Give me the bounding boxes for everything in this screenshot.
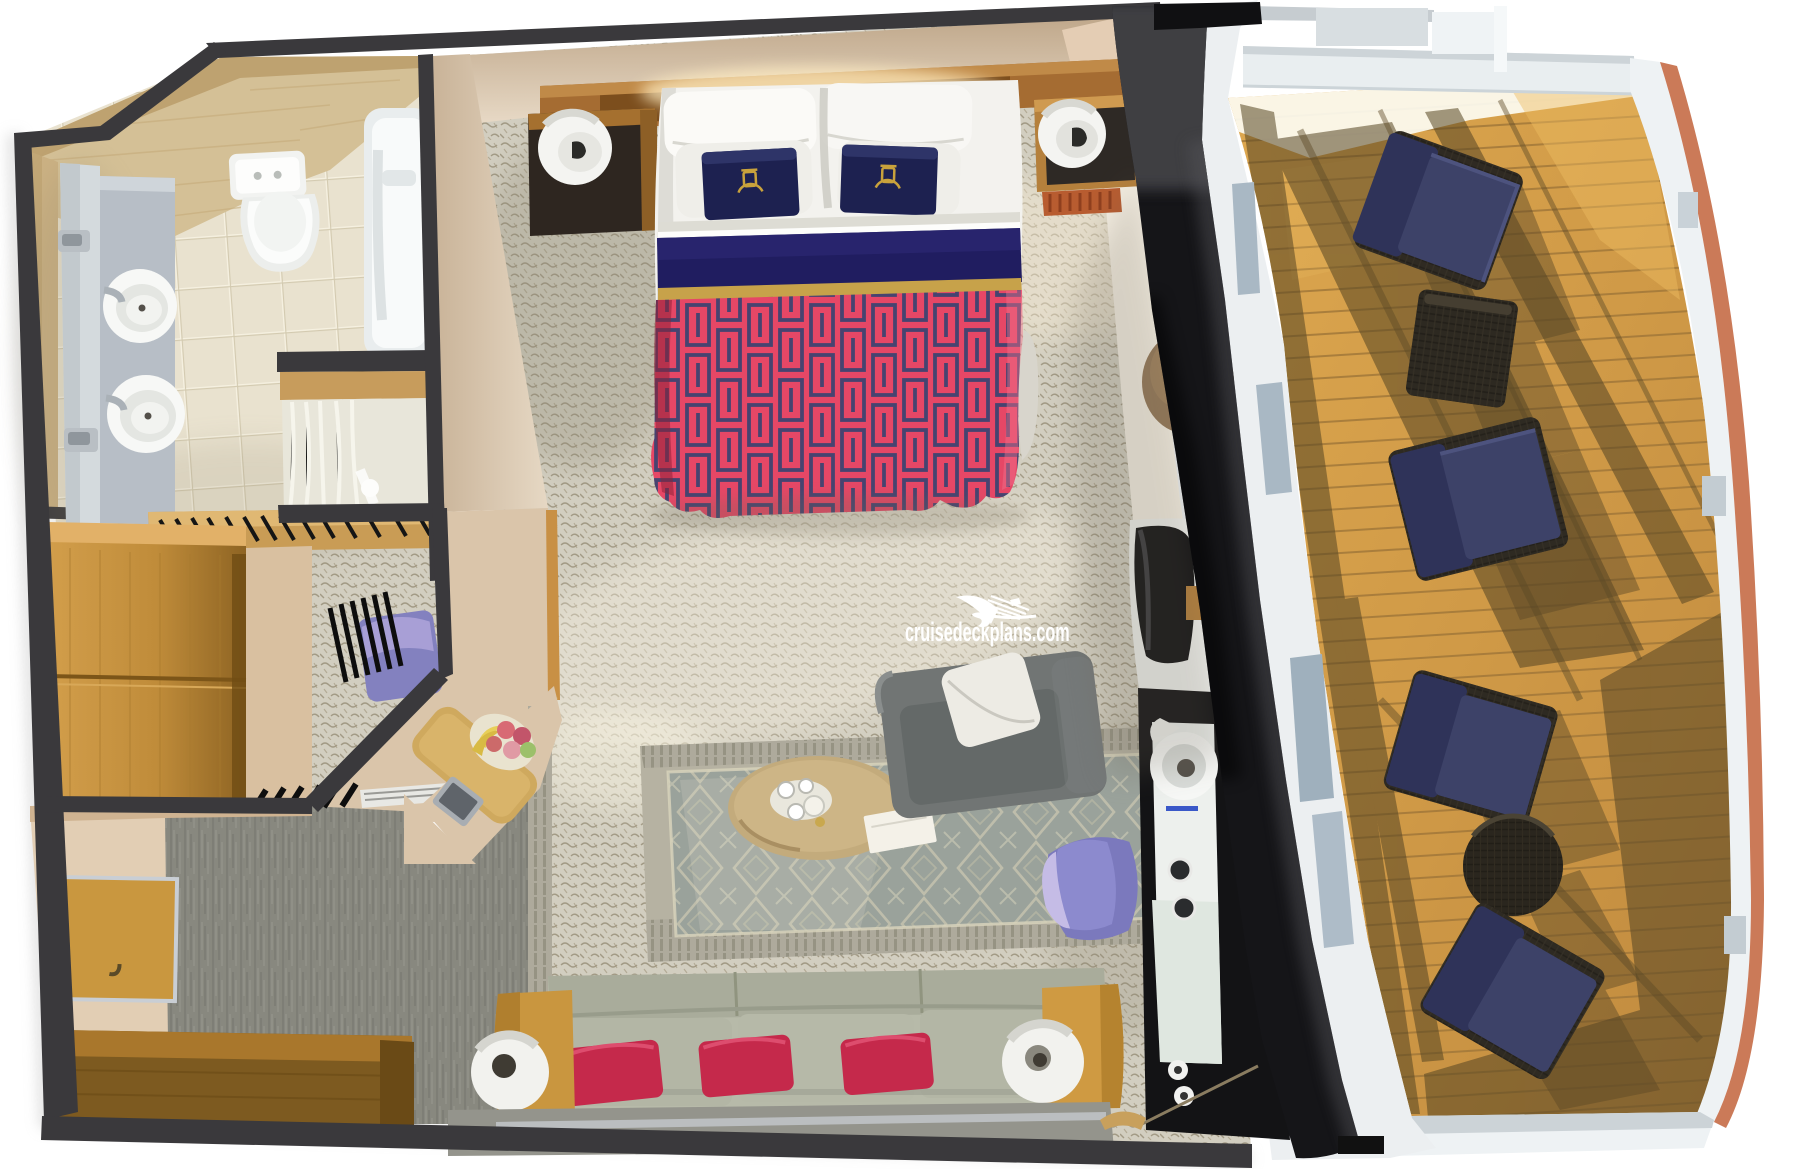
svg-text:cruisedeckplans.com: cruisedeckplans.com [905,617,1070,647]
